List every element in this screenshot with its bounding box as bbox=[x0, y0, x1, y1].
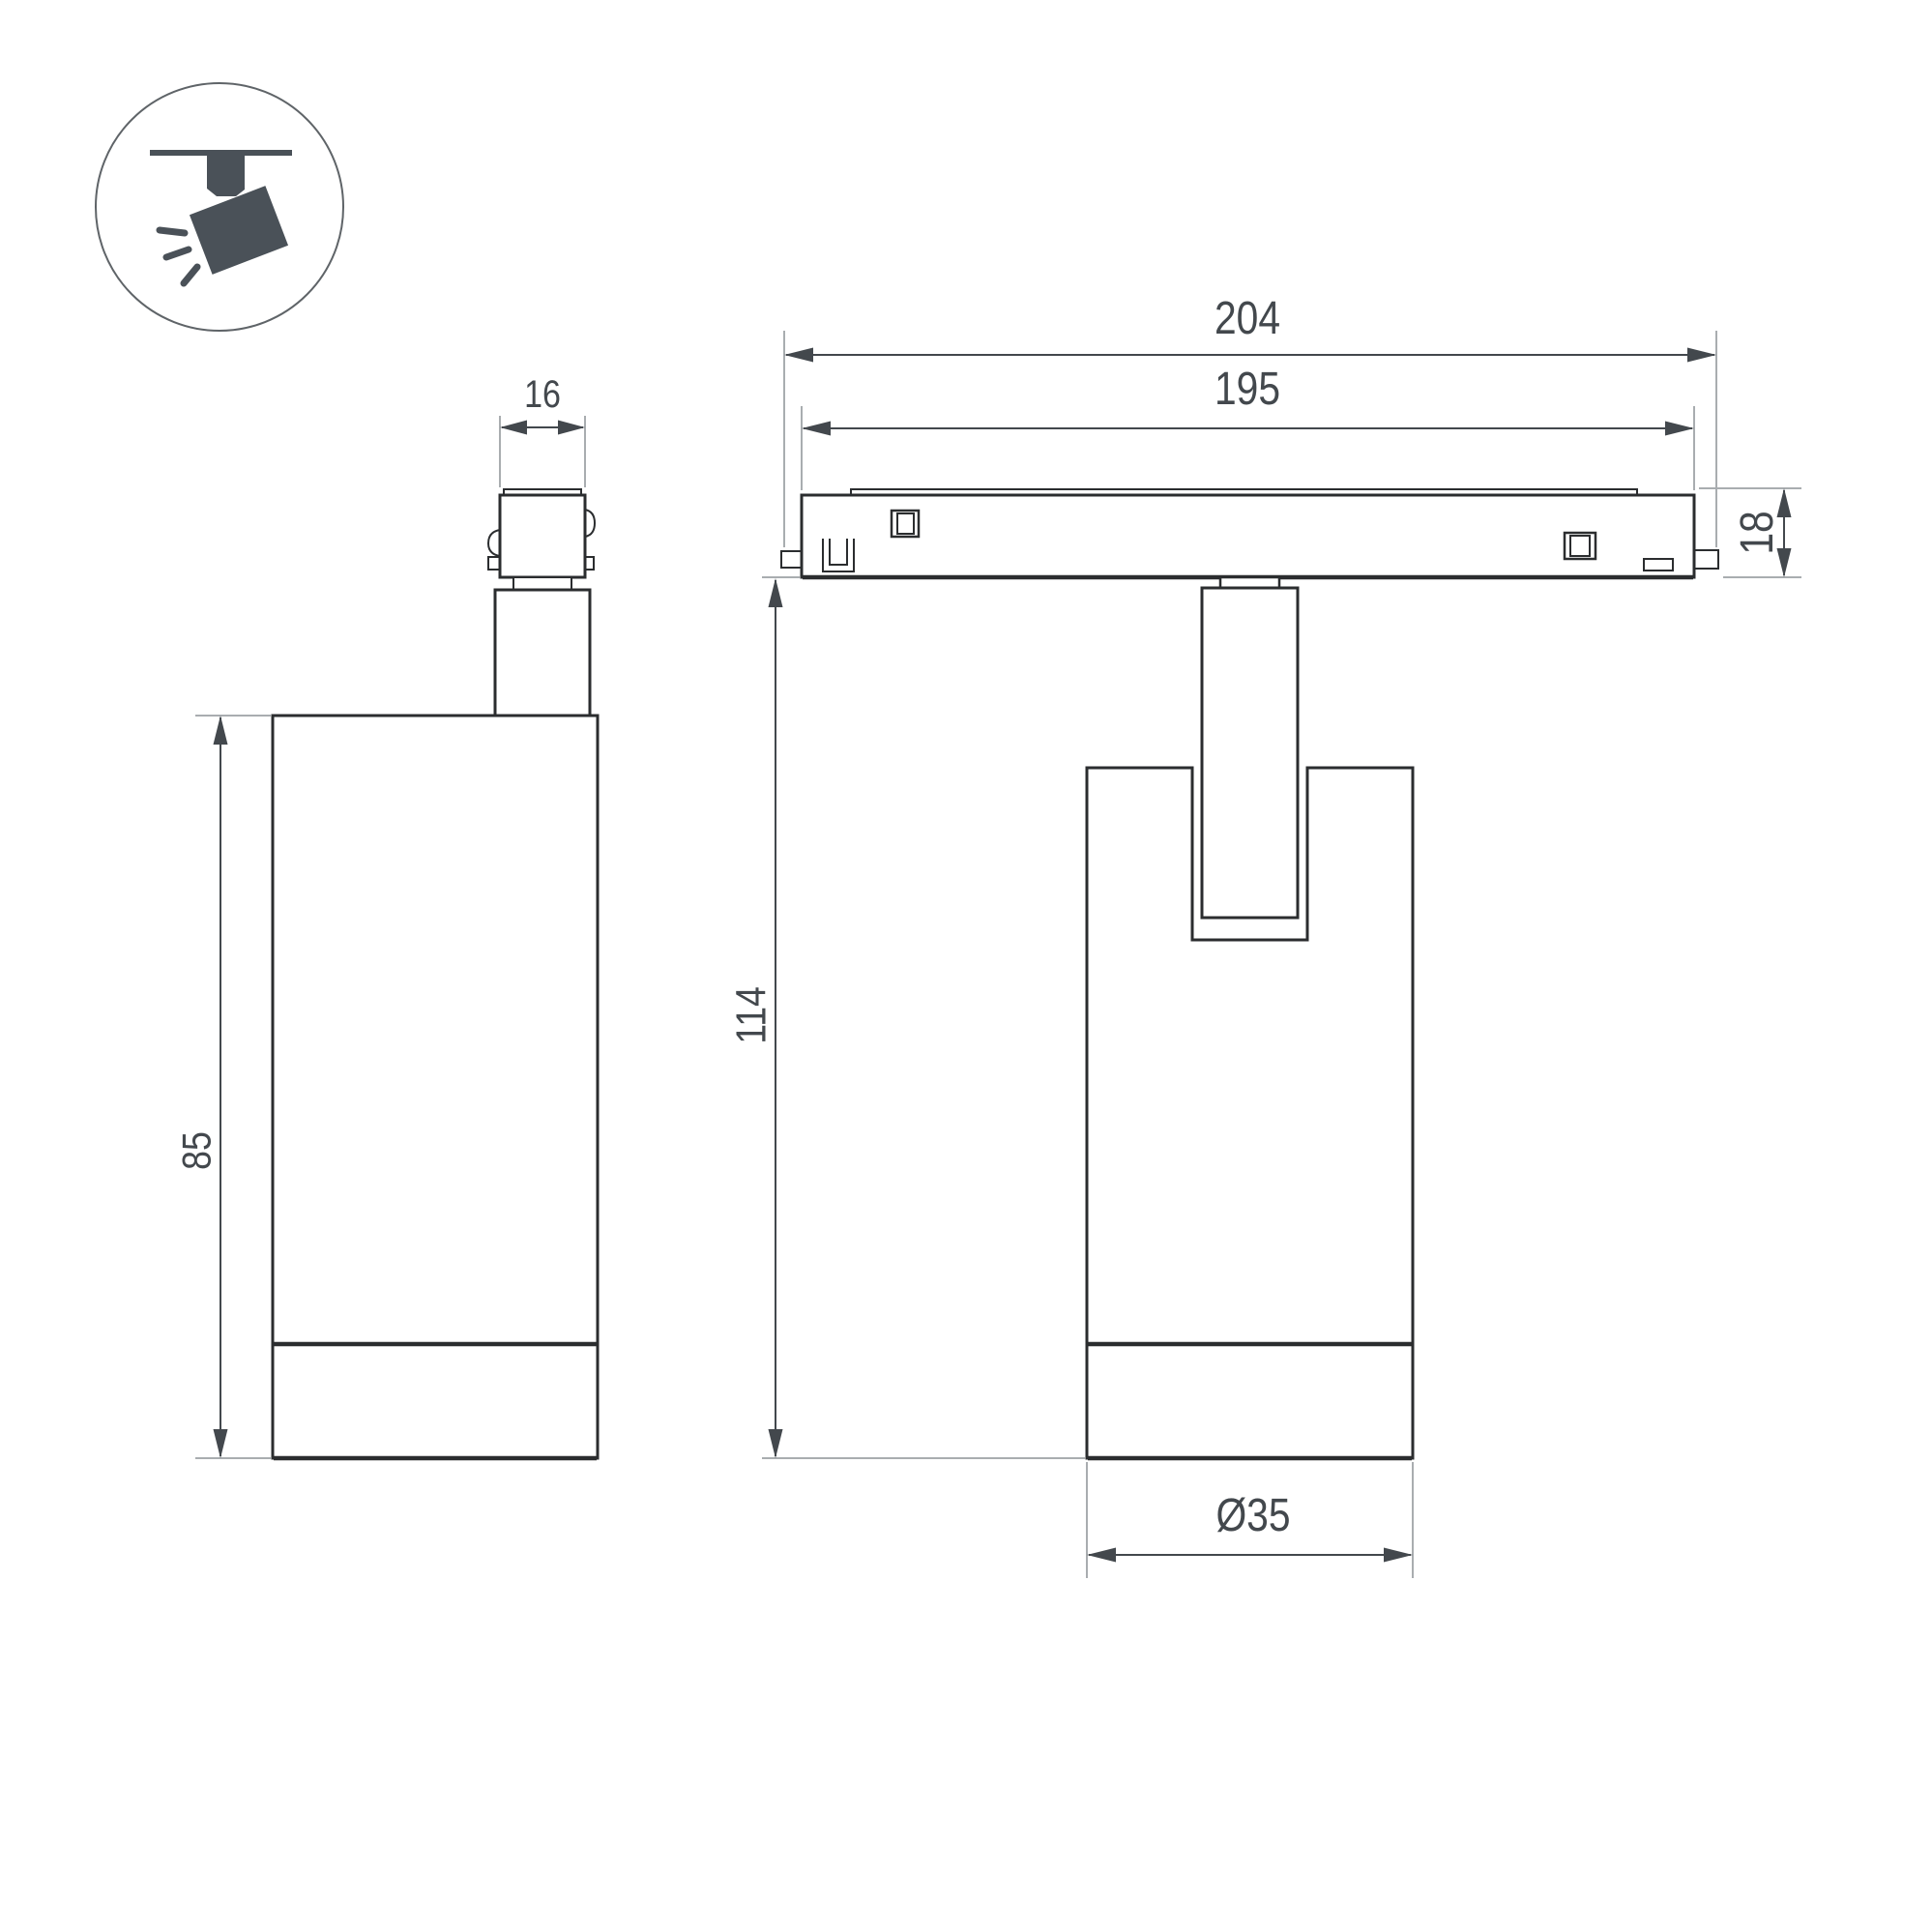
arrow-left-icon bbox=[802, 422, 831, 436]
dimension-label: Ø35 bbox=[1215, 1490, 1290, 1541]
front-stem bbox=[1202, 588, 1298, 918]
dimension-label: 85 bbox=[175, 1131, 220, 1170]
technical-drawing-page: 16 204 195 18 bbox=[0, 0, 1932, 1932]
arrow-down-icon bbox=[214, 1429, 228, 1458]
side-view bbox=[273, 489, 598, 1458]
dimension-fixture-height: 114 bbox=[727, 577, 1085, 1458]
arrow-down-icon bbox=[769, 1429, 783, 1458]
front-stem-cap bbox=[1220, 577, 1279, 588]
dimension-label: 204 bbox=[1215, 293, 1280, 344]
front-view-lamp bbox=[1087, 577, 1413, 1458]
track-spotlight-icon bbox=[96, 83, 343, 331]
arrow-left-icon bbox=[500, 421, 527, 435]
track-end-tab-left bbox=[781, 551, 802, 568]
dimension-label: 18 bbox=[1732, 511, 1783, 554]
dimension-label: 195 bbox=[1215, 364, 1280, 415]
arrow-left-icon bbox=[1087, 1548, 1116, 1563]
dimension-adapter-width: 16 bbox=[500, 371, 585, 487]
arrow-right-icon bbox=[1384, 1548, 1413, 1563]
dimension-label: 114 bbox=[727, 986, 776, 1044]
dimension-label: 16 bbox=[524, 371, 561, 415]
side-adapter-neck bbox=[513, 577, 571, 590]
dimension-track-inner-length: 195 bbox=[802, 364, 1694, 490]
icon-mount-stem bbox=[207, 155, 245, 196]
side-body bbox=[273, 716, 598, 1458]
front-view-track bbox=[781, 489, 1718, 577]
arrow-right-icon bbox=[1687, 348, 1716, 363]
track-body bbox=[802, 495, 1694, 577]
arrow-up-icon bbox=[769, 578, 783, 607]
arrow-up-icon bbox=[214, 716, 228, 745]
dimension-drawing: 16 204 195 18 bbox=[0, 0, 1932, 1932]
side-stem bbox=[495, 590, 590, 716]
side-adapter-body bbox=[500, 495, 585, 577]
arrow-left-icon bbox=[784, 348, 813, 363]
dimension-body-diameter: Ø35 bbox=[1087, 1462, 1413, 1578]
track-end-tab-right bbox=[1694, 550, 1718, 569]
side-adapter-ear-left bbox=[488, 530, 500, 556]
arrow-right-icon bbox=[558, 421, 585, 435]
dimension-body-height: 85 bbox=[175, 716, 271, 1458]
arrow-right-icon bbox=[1665, 422, 1694, 436]
